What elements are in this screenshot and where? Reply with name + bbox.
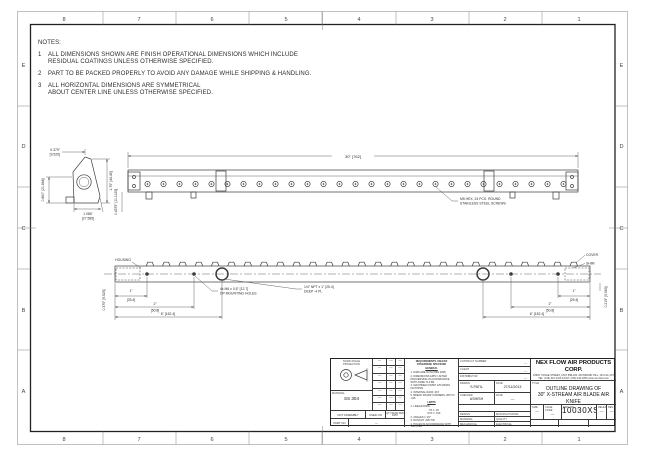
contract-cell: CONTRACT NUMBER — (459, 359, 531, 367)
req-general-label: GENERAL (407, 367, 457, 370)
req-item: 3. MACHINED FINISH 125 MICRO INCH RMS (411, 384, 457, 390)
mechanical-label: MECHANICAL (459, 422, 494, 426)
dim-sec-left-text: 0.860" [21.844] (41, 179, 45, 202)
note-text: ALL HORIZONTAL DIMENSIONS ARE SYMMETRICA… (48, 83, 201, 90)
electrical-cell: ELECTRICAL (495, 422, 531, 427)
zone-row-label: A (620, 389, 624, 395)
not-assembly-cell: NOT ASSEMBLY (331, 411, 366, 419)
dim-left-end-text: 0.4375" [11.1125] (114, 189, 118, 215)
dim-6-right: 6" [152.4] (530, 312, 544, 316)
material-sign-label: MATERIAL (459, 417, 494, 421)
rev-cell: — (373, 374, 387, 381)
zone-row-label: C (21, 226, 25, 232)
dwg-no-value: 10030XS (562, 409, 596, 413)
rev-dash: — (387, 396, 395, 399)
scale-cell: SCALE 1:1 (531, 420, 559, 427)
rev-cell: — (396, 403, 405, 411)
date-value: 27/11/2013 (495, 385, 530, 389)
note-item: 1 ALL DIMENSIONS SHOWN ARE FINISH OPERAT… (38, 52, 311, 59)
section-view: 0.375" [9.525] 1.75" [44.45] 1.086" [27.… (41, 148, 113, 221)
manufacturing-label: MANUFACTURING (495, 412, 530, 416)
req-limits-label: LIMITS (407, 401, 457, 404)
size-cell: SIZE — (531, 405, 544, 420)
date2-cell: DATE — (495, 393, 531, 405)
project-cell: PROJECT N.A. (459, 405, 531, 412)
rev-cell: — (396, 359, 405, 366)
rev-cell: — (373, 403, 387, 411)
rev-dash: — (396, 366, 404, 369)
zone-col-label: 6 (210, 17, 213, 23)
zone-col-label: 8 (62, 17, 65, 23)
cage-code-value: — (544, 412, 561, 416)
note-number: 1 (38, 52, 48, 59)
dim-6-left: 6" [152.4] (161, 312, 175, 316)
zone-col-label: 4 (357, 437, 360, 443)
title-label: TITLE (531, 381, 616, 385)
npt-callout-line2: DEEP -4 PL (304, 290, 322, 294)
rev-dash: — (387, 374, 395, 377)
req-item: 4. HOLES IN ACCORDANCE WITH ANSI STD (411, 423, 457, 428)
third-angle-projection-icon (331, 366, 373, 384)
drawing-title-cell: TITLE OUTLINE DRAWING OF 30" X-STREAM AI… (531, 381, 616, 405)
zone-row-label: D (619, 144, 623, 150)
dims-right: 1" [25.4] 2" [50.8] 6" [152.4] 0.219" [5… (483, 277, 608, 320)
rev-cell: — (387, 374, 396, 381)
rev-dash: — (387, 366, 395, 369)
rev-id-cell: REV — (607, 405, 616, 420)
zone-col-label: 3 (430, 17, 433, 23)
note-text-cont: RESIDUAL COATINGS UNLESS OTHERWISE SPECI… (38, 59, 311, 66)
rev-cell: — (387, 389, 396, 396)
screw-head-bumps (146, 262, 577, 266)
note-item: 3 ALL HORIZONTAL DIMENSIONS ARE SYMMETRI… (38, 83, 311, 90)
req-header-2: OTHERWISE SPECIFIED (407, 363, 457, 366)
rev-dash: — (387, 389, 395, 392)
drawn-cell: DRAWN S.PATIL (459, 381, 495, 393)
used-on-cell: USED ON (366, 411, 386, 419)
npt-callout-line1: 1/4" NPT x 1" [25.4] (304, 285, 334, 289)
req-limits-list: 1. LINEAR DIMS: .XX ± .03 .XXX ± .010 2.… (407, 405, 457, 427)
rev-dash: — (396, 389, 404, 392)
rev-dash: — (373, 403, 386, 406)
used-on-label: USED ON (369, 413, 382, 417)
rev-dash: — (396, 403, 404, 406)
checked-value: ASHISH (459, 397, 494, 401)
material-cell: MATERIAL SS 304 (331, 391, 373, 411)
zone-row-label: C (619, 226, 623, 232)
dim-2-in: 2" (153, 302, 157, 306)
rev-dash: — (387, 403, 395, 406)
date-cell: DATE 27/11/2013 (495, 381, 531, 393)
dim-1-in: 1" (129, 289, 133, 293)
rev-dash: — (373, 359, 386, 362)
projection-cell: THIRD ANGLE PROJECTION (331, 359, 373, 391)
rev-cell: — (387, 396, 396, 403)
dim-sec-right-text: 1.75" [44.45] (109, 171, 113, 190)
req-item: 5. BREAK SHARP CORNERS .005 TO .015 (411, 394, 457, 400)
contract-label: CONTRACT NUMBER (459, 359, 530, 363)
rev-dash: — (396, 374, 404, 377)
zone-row-label: D (21, 144, 25, 150)
housing-label: HOUSING (115, 258, 131, 262)
company-cell: NEX FLOW AIR PRODUCTS CORP. 10520 YONGE … (531, 359, 616, 381)
zone-col-label: 1 (577, 17, 580, 23)
part-no-value-cell: — (349, 419, 405, 427)
rev-cell: — (387, 381, 396, 388)
dim-1-in-r: 1" (572, 289, 576, 293)
mechanical-cell: MECHANICAL (459, 422, 495, 427)
release-cell: RELEASE — (597, 405, 607, 420)
req-general-list: 1. DIMS ARE IN INCHES (MM) 2. DIMENSIONS… (407, 371, 457, 400)
dim-overall-text: 30" [762] (345, 154, 361, 159)
dims-left: 1" [25.4] 2" [50.8] 6" [152.4] 0.375" [9… (102, 277, 222, 320)
zone-col-label: 8 (62, 437, 65, 443)
rev-dash: — (396, 359, 404, 362)
zone-row-label: A (22, 389, 26, 395)
dim-right-v: 0.219" [5.563] (604, 286, 608, 307)
rev-dash: — (387, 381, 395, 384)
shim-label: SHIM (586, 262, 595, 266)
notes: NOTES: 1 ALL DIMENSIONS SHOWN ARE FINISH… (38, 40, 311, 97)
title-block: THIRD ANGLE PROJECTION MATERIAL SS 304 —… (330, 358, 615, 426)
rev-cell: — (396, 366, 405, 373)
rev-cell: — (396, 389, 405, 396)
dim-sec-top-mm: [9.525] (50, 153, 60, 157)
zone-row-label: B (620, 308, 624, 314)
qty-cell: QTY REQD PER ASSY (386, 411, 405, 419)
not-assembly-label: NOT ASSEMBLY (337, 413, 358, 417)
zone-col-label: 5 (284, 437, 287, 443)
dim-sec-bottom-mm: [27.585] (82, 217, 94, 221)
release-label: RELEASE (597, 405, 606, 409)
rev-cell: — (373, 389, 387, 396)
zone-col-label: 1 (577, 437, 580, 443)
rev-cell: — (396, 381, 405, 388)
client-value: — (524, 369, 527, 373)
date2-value: — (495, 397, 530, 401)
electrical-label: ELECTRICAL (495, 422, 530, 426)
checked-cell: CHECKED ASHISH (459, 393, 495, 405)
notes-title: NOTES: (38, 40, 311, 47)
rev-cell: — (396, 396, 405, 403)
rev-dash: — (373, 374, 386, 377)
screw-callout-line2: STAINLESS STEEL SCREWS (460, 202, 507, 206)
sheet-cell: SHEET 1 OF 1 (589, 420, 616, 427)
rev-cell: — (387, 403, 396, 411)
distributor-value: — (524, 376, 527, 380)
rev-cell: — (387, 359, 396, 366)
rev-dash: — (373, 396, 386, 399)
dim-overall: 30" [762] (128, 152, 578, 168)
client-label: CLIENT (459, 367, 530, 371)
quality-label: QUALITY (495, 417, 530, 421)
screw-callout: M5 HEX, 24 PCS. ROUND STAINLESS STEEL SC… (436, 187, 507, 206)
bottom-view: HOUSING COVER SHIM 4x M6 x 0.5" [12.7] D… (102, 253, 608, 320)
company-name: NEX FLOW AIR PRODUCTS CORP. (531, 359, 616, 374)
rev-cell: — (387, 366, 396, 373)
dim-2-in-r: 2" (548, 302, 552, 306)
dim-2-mm: [50.8] (151, 309, 160, 313)
cad-no-cell: CAD NO 6AKS-30 (559, 420, 589, 427)
dim-sec-top-in: 0.375" (50, 148, 60, 152)
dim-1-mm-r: [25.4] (570, 298, 579, 302)
dim-1-mm: [25.4] (127, 298, 136, 302)
contract-value: — (524, 361, 527, 365)
design-label: DESIGN (459, 412, 494, 416)
rev-dash: — (373, 366, 386, 369)
top-view: 30" [762] 0.4375" [11.1125] M5 HEX, 24 P… (114, 152, 578, 215)
part-no-value: — (375, 421, 378, 425)
rev-dash: — (396, 381, 404, 384)
distributor-label: DISTRIBUTOR (459, 374, 530, 378)
rev-dash: — (387, 359, 395, 362)
cage-code-cell: CAGE CODE — (544, 405, 562, 420)
drawing-sheet: 8 7 6 5 4 3 2 1 8 7 6 5 4 3 2 1 E D C B … (0, 0, 645, 456)
zone-col-label: 5 (284, 17, 287, 23)
company-phone: TEL: (416) 410-1313 & FAX: (416) 410-180… (531, 377, 616, 380)
note-item: 2 PART TO BE PACKED PROPERLY TO AVOID AN… (38, 71, 311, 78)
rev-cell: — (373, 396, 387, 403)
dim-sec-right: 1.75" [44.45] (92, 159, 113, 203)
rev-dash: — (396, 396, 404, 399)
cover-label: COVER (586, 253, 599, 257)
dim-sec-top: 0.375" [9.525] (50, 148, 85, 157)
drawing-title-line2: 30" X-STREAM AIR BLADE AIR KNIFE (531, 392, 616, 405)
part-no-label: PART NO (333, 421, 345, 425)
size-value: — (531, 409, 543, 413)
drawn-value: S.PATIL (459, 385, 494, 389)
m6-callout-line1: 4x M6 x 0.5" [12.7] (220, 287, 248, 291)
requirements-cell: REQUIREMENTS UNLESS OTHERWISE SPECIFIED … (405, 359, 459, 427)
client-cell: CLIENT — (459, 367, 531, 374)
rev-cell: — (373, 359, 387, 366)
note-number: 2 (38, 71, 48, 78)
distributor-cell: DISTRIBUTOR — (459, 374, 531, 381)
housing-callout: HOUSING (115, 258, 141, 268)
dwg-no-cell: DWG NO 10030XS (562, 405, 597, 420)
rev-value: — (607, 409, 616, 413)
note-text: PART TO BE PACKED PROPERLY TO AVOID ANY … (48, 71, 311, 78)
req-item: 2. DIMENSIONS APPLY AFTER PROCESSING IN … (411, 375, 457, 384)
dim-sec-left: 0.860" [21.844] (41, 177, 73, 203)
zone-col-label: 3 (430, 437, 433, 443)
note-text: ALL DIMENSIONS SHOWN ARE FINISH OPERATIO… (48, 52, 298, 59)
zone-col-label: 7 (137, 17, 140, 23)
note-text-cont: ABOUT CENTER LINE UNLESS OTHERWISE SPECI… (38, 90, 311, 97)
screw-row (145, 181, 566, 186)
dim-left-end: 0.4375" [11.1125] (114, 189, 122, 215)
part-no-label-cell: PART NO (331, 419, 349, 427)
zone-col-label: 2 (503, 17, 506, 23)
zone-row-label: B (22, 308, 26, 314)
zone-col-label: 4 (357, 17, 360, 23)
rev-cell: — (373, 381, 387, 388)
m6-callout-line2: DP MOUNTING HOLES (220, 292, 257, 296)
dim-2-mm-r: [50.8] (546, 309, 555, 313)
rev-dash: — (373, 389, 386, 392)
rev-cell: — (396, 374, 405, 381)
note-number: 3 (38, 83, 48, 90)
zone-col-label: 6 (210, 437, 213, 443)
rev-dash: — (373, 381, 386, 384)
dim-left-v: 0.375" [9.525] (102, 289, 106, 310)
zone-col-label: 7 (137, 437, 140, 443)
dim-sec-bottom-in: 1.086" (83, 212, 93, 216)
zone-row-label: E (22, 63, 26, 69)
zone-row-label: E (620, 63, 624, 69)
zone-col-label: 2 (503, 437, 506, 443)
release-value: — (597, 409, 606, 413)
qty-label: QTY REQD PER ASSY (386, 413, 404, 417)
rev-cell: — (373, 366, 387, 373)
material-value: SS 304 (331, 397, 372, 401)
material-label: MATERIAL (331, 391, 372, 395)
screw-callout-line1: M5 HEX, 24 PCS. ROUND (460, 197, 501, 201)
